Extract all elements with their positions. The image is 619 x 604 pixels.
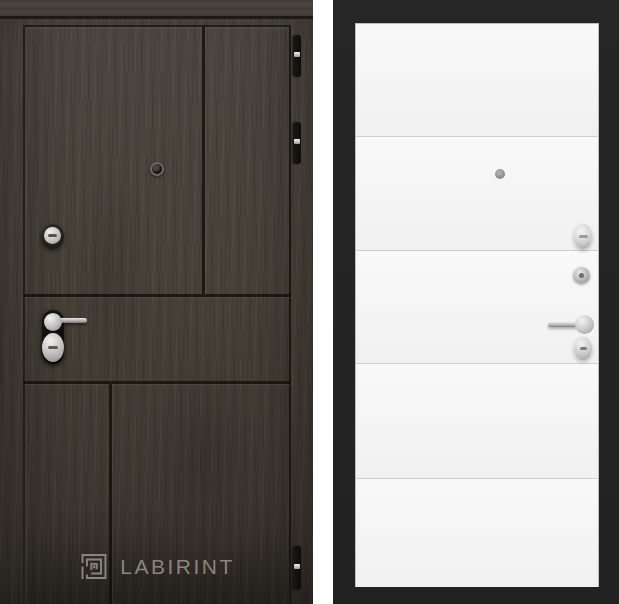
lock-cylinder bbox=[574, 337, 592, 360]
door-leaf bbox=[23, 25, 291, 604]
hinge-pin bbox=[294, 564, 300, 569]
door-white-product-image[interactable]: LABIRINT bbox=[333, 0, 619, 604]
panel-line bbox=[356, 363, 598, 364]
peephole-icon bbox=[150, 162, 164, 176]
panel-line bbox=[356, 250, 598, 251]
keyhole bbox=[579, 273, 584, 278]
lock-cylinder bbox=[42, 333, 64, 362]
panel-groove-horizontal bbox=[23, 294, 291, 297]
thumb-turn-knob bbox=[574, 224, 592, 249]
thumb-turn-ridge bbox=[579, 235, 588, 238]
door-leaf bbox=[355, 23, 599, 587]
hinge bbox=[293, 122, 301, 164]
night-lock bbox=[573, 267, 590, 284]
panel-groove-horizontal bbox=[23, 381, 291, 384]
door-panel-section bbox=[356, 137, 598, 250]
brand-logo: LABIRINT bbox=[23, 548, 291, 584]
door-panel-section bbox=[356, 479, 598, 587]
panel-line bbox=[356, 478, 598, 479]
door-panel-section bbox=[356, 251, 598, 363]
panel-groove-vertical bbox=[202, 27, 205, 294]
handle-rosette bbox=[44, 313, 62, 331]
door-dark-product-image[interactable]: LABIRINT bbox=[0, 0, 313, 604]
peephole-icon bbox=[495, 169, 505, 179]
door-panel-section bbox=[356, 24, 598, 136]
handle-rosette bbox=[575, 315, 594, 334]
wood-grain-knot bbox=[65, 147, 155, 407]
hinge bbox=[293, 546, 301, 590]
hinge-pin bbox=[294, 52, 300, 57]
keyhole-slot bbox=[48, 346, 58, 349]
deadbolt-lock bbox=[41, 224, 64, 249]
keyhole-slot bbox=[580, 347, 587, 350]
door-product-gallery: LABIRINT bbox=[0, 0, 619, 604]
keyhole-slot bbox=[48, 234, 57, 237]
labyrinth-logo-icon bbox=[79, 551, 109, 582]
hinge bbox=[293, 35, 301, 77]
door-panel-section bbox=[356, 364, 598, 478]
wood-grain-knot bbox=[145, 347, 265, 567]
panel-line bbox=[356, 136, 598, 137]
door-lintel bbox=[0, 0, 313, 19]
hinge-pin bbox=[294, 139, 300, 144]
brand-logo-text: LABIRINT bbox=[120, 556, 235, 577]
